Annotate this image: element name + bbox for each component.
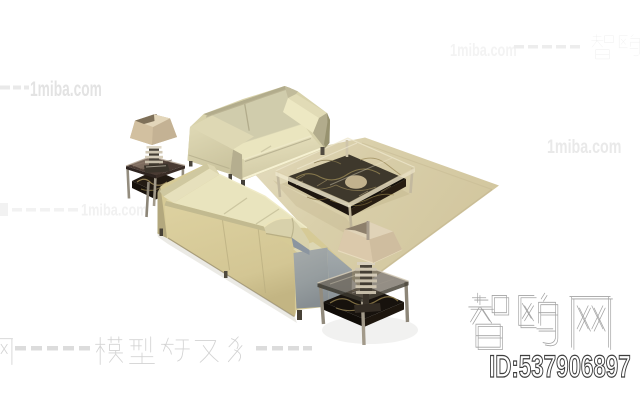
- svg-text:1miba.com: 1miba.com: [81, 201, 148, 220]
- svg-text:ID:537906897: ID:537906897: [489, 348, 631, 384]
- svg-text:1miba.com: 1miba.com: [30, 77, 102, 101]
- svg-text:1miba.com: 1miba.com: [450, 41, 517, 60]
- svg-text:1miba.com: 1miba.com: [547, 136, 621, 157]
